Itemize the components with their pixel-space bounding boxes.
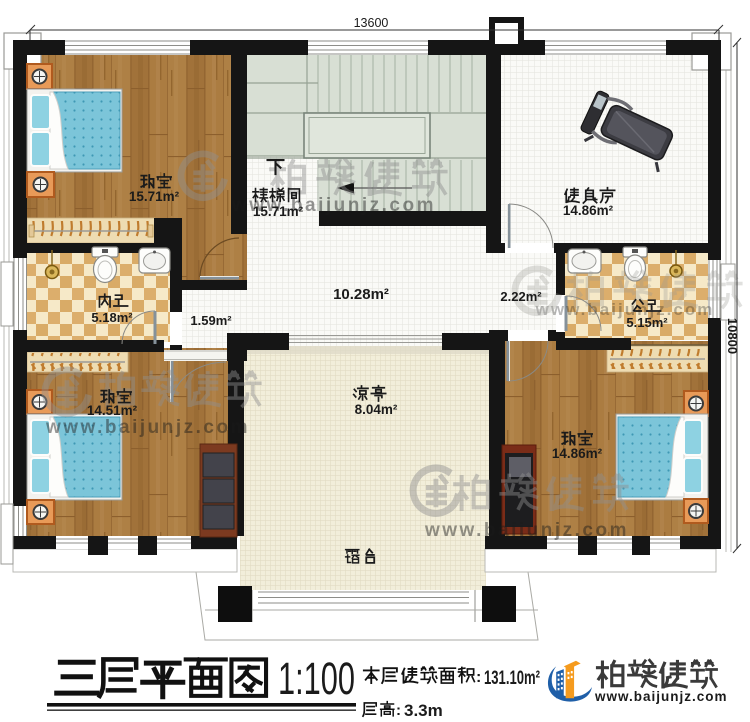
svg-text:14.86m²: 14.86m²	[552, 446, 603, 461]
svg-text:5.18m²: 5.18m²	[91, 310, 133, 325]
svg-text:14.86m²: 14.86m²	[563, 203, 614, 218]
svg-text:www.baijunjz.com: www.baijunjz.com	[45, 417, 250, 438]
svg-text:www.baijunjz.com: www.baijunjz.com	[424, 520, 629, 541]
svg-text:www.baijunjz.com: www.baijunjz.com	[535, 300, 715, 319]
svg-text:8.04m²: 8.04m²	[355, 402, 398, 417]
svg-text:131.10m²: 131.10m²	[484, 668, 540, 689]
svg-text:15.71m²: 15.71m²	[253, 204, 304, 219]
svg-text:www.baijunjz.com: www.baijunjz.com	[594, 689, 728, 704]
svg-text:13600: 13600	[354, 16, 389, 30]
svg-text:1.59m²: 1.59m²	[190, 313, 232, 328]
svg-text::: :	[476, 669, 481, 686]
svg-text::: :	[396, 702, 401, 719]
svg-text:10.28m²: 10.28m²	[333, 286, 389, 303]
svg-text:14.51m²: 14.51m²	[87, 403, 138, 418]
svg-text:10800: 10800	[725, 318, 740, 354]
svg-text:1:100: 1:100	[278, 653, 355, 704]
svg-text:3.3m: 3.3m	[404, 701, 443, 720]
svg-text:15.71m²: 15.71m²	[129, 189, 180, 204]
svg-text:5.15m²: 5.15m²	[626, 315, 668, 330]
svg-text:2.22m²: 2.22m²	[500, 289, 542, 304]
